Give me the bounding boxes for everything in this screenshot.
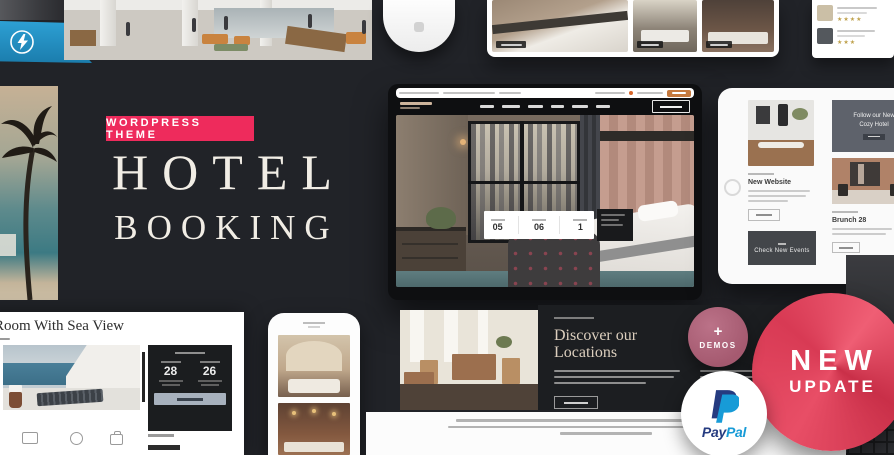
lobby-photo (64, 0, 372, 60)
paypal-logo-icon (709, 389, 739, 423)
mouse-device (383, 0, 455, 52)
divider (142, 352, 145, 402)
widget-title (175, 352, 205, 354)
phone-logo (303, 322, 325, 324)
amenity-bed-icon (22, 432, 38, 444)
room-photo (492, 0, 628, 52)
view-more-button[interactable] (554, 396, 598, 409)
room-detail-page: Room With Sea View 28 26 (0, 312, 244, 455)
restaurant-photo (400, 310, 538, 410)
review-item: ★★★ (817, 28, 889, 46)
best-rooms-underline (148, 445, 180, 450)
favicon-dot (629, 91, 633, 95)
browser-bar (396, 88, 694, 98)
rooms-gallery-card (487, 0, 779, 57)
site-navbar (396, 98, 694, 115)
post-title[interactable]: Brunch 28 (832, 216, 894, 225)
section-caption (554, 317, 594, 319)
events-card[interactable]: Check New Events (748, 231, 816, 265)
post-title[interactable]: New Website (748, 178, 814, 187)
promo-button[interactable] (863, 134, 885, 140)
room-photo (633, 0, 697, 52)
blog-photo (832, 158, 894, 204)
title-hotel: HOTEL (88, 142, 356, 202)
blog-photo (748, 100, 814, 166)
promo-card[interactable]: Follow our New Cozy Hotel (832, 100, 894, 152)
post-meta (748, 173, 774, 175)
phone-photo (278, 335, 350, 397)
reviews-card: ★★★★ ★★★ (812, 0, 894, 58)
hero-browser-mockup: 05 06 1 (388, 84, 702, 300)
guests-field[interactable]: 1 (573, 219, 587, 232)
best-rooms-label (148, 434, 174, 437)
check-in-cell[interactable]: 28 (154, 361, 187, 386)
demos-sticker: + DEMOS (688, 307, 748, 367)
check-in-field[interactable]: 05 (491, 219, 505, 232)
nav-item[interactable] (572, 105, 588, 108)
nav-item[interactable] (480, 105, 494, 108)
nav-item[interactable] (528, 105, 543, 108)
check-out-field[interactable]: 06 (532, 219, 546, 232)
phone-mockup (268, 313, 360, 455)
corner-photo-fragment (0, 0, 64, 20)
browser-book-button[interactable] (667, 90, 691, 97)
theme-promo-banner: ★★★★ ★★★ WORDPRESS THEME HOTEL BOOKING (0, 0, 894, 455)
review-thumb (817, 5, 833, 21)
read-more-button[interactable] (748, 209, 780, 221)
room-photo (702, 0, 774, 52)
palm-tree-icon (0, 86, 58, 300)
amenity-luggage-icon (110, 434, 123, 445)
nav-item[interactable] (502, 105, 520, 108)
booking-bar[interactable]: 05 06 1 (484, 211, 594, 239)
post-meta (832, 211, 858, 213)
review-thumb (817, 28, 833, 44)
tablet-home-button (724, 179, 741, 196)
wordpress-theme-badge: WORDPRESS THEME (106, 116, 254, 141)
lightning-icon (9, 29, 35, 55)
text-column (554, 370, 682, 388)
site-logo (400, 102, 432, 111)
main-title: HOTEL BOOKING (88, 142, 356, 254)
sea-view-photo (3, 345, 140, 410)
rating-stars: ★★★★ (837, 17, 877, 23)
availability-panel[interactable] (597, 209, 633, 241)
booking-widget: 28 26 (148, 345, 232, 431)
mouse-logo (414, 22, 424, 32)
book-now-button[interactable] (652, 100, 690, 113)
paypal-sticker: PayPal (681, 371, 767, 455)
nav-item[interactable] (551, 105, 564, 108)
title-booking: BOOKING (88, 202, 356, 254)
room-page-title: Room With Sea View (0, 318, 124, 335)
nav-item[interactable] (596, 105, 610, 108)
read-more-button[interactable] (832, 242, 860, 253)
check-out-cell[interactable]: 26 (193, 361, 226, 386)
phone-photo (278, 403, 350, 455)
book-now-button[interactable] (154, 393, 226, 405)
amenity-service-icon (70, 432, 83, 445)
review-item: ★★★★ (817, 5, 889, 23)
paypal-wordmark: PayPal (702, 424, 746, 440)
palm-beach-photo (0, 86, 58, 300)
rating-stars: ★★★ (837, 40, 875, 46)
hero-room-photo: 05 06 1 (396, 115, 694, 287)
